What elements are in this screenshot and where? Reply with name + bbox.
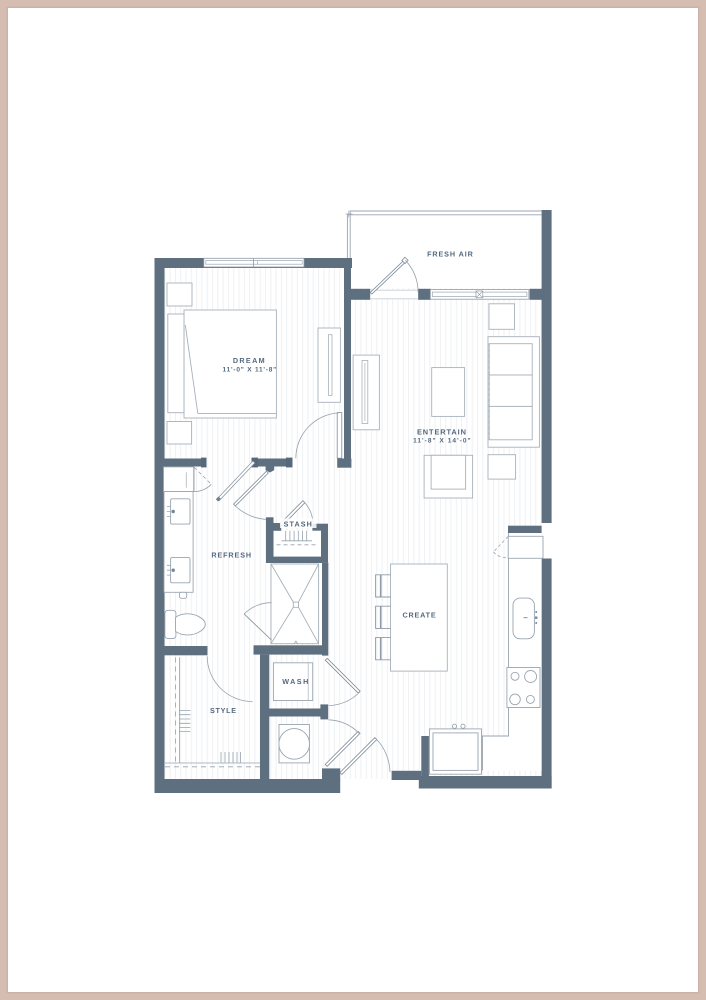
svg-text:STYLE: STYLE [210,706,237,715]
svg-text:REFRESH: REFRESH [211,551,252,560]
svg-text:11'-0" X 11'-8": 11'-0" X 11'-8" [223,366,278,373]
svg-text:FRESH AIR: FRESH AIR [427,249,474,258]
svg-text:11'-8" X 14'-0": 11'-8" X 14'-0" [413,437,472,444]
svg-text:DREAM: DREAM [233,356,266,365]
svg-text:WASH: WASH [282,677,310,686]
svg-text:ENTERTAIN: ENTERTAIN [417,427,467,436]
svg-text:STASH: STASH [284,520,313,529]
svg-text:CREATE: CREATE [402,611,436,620]
